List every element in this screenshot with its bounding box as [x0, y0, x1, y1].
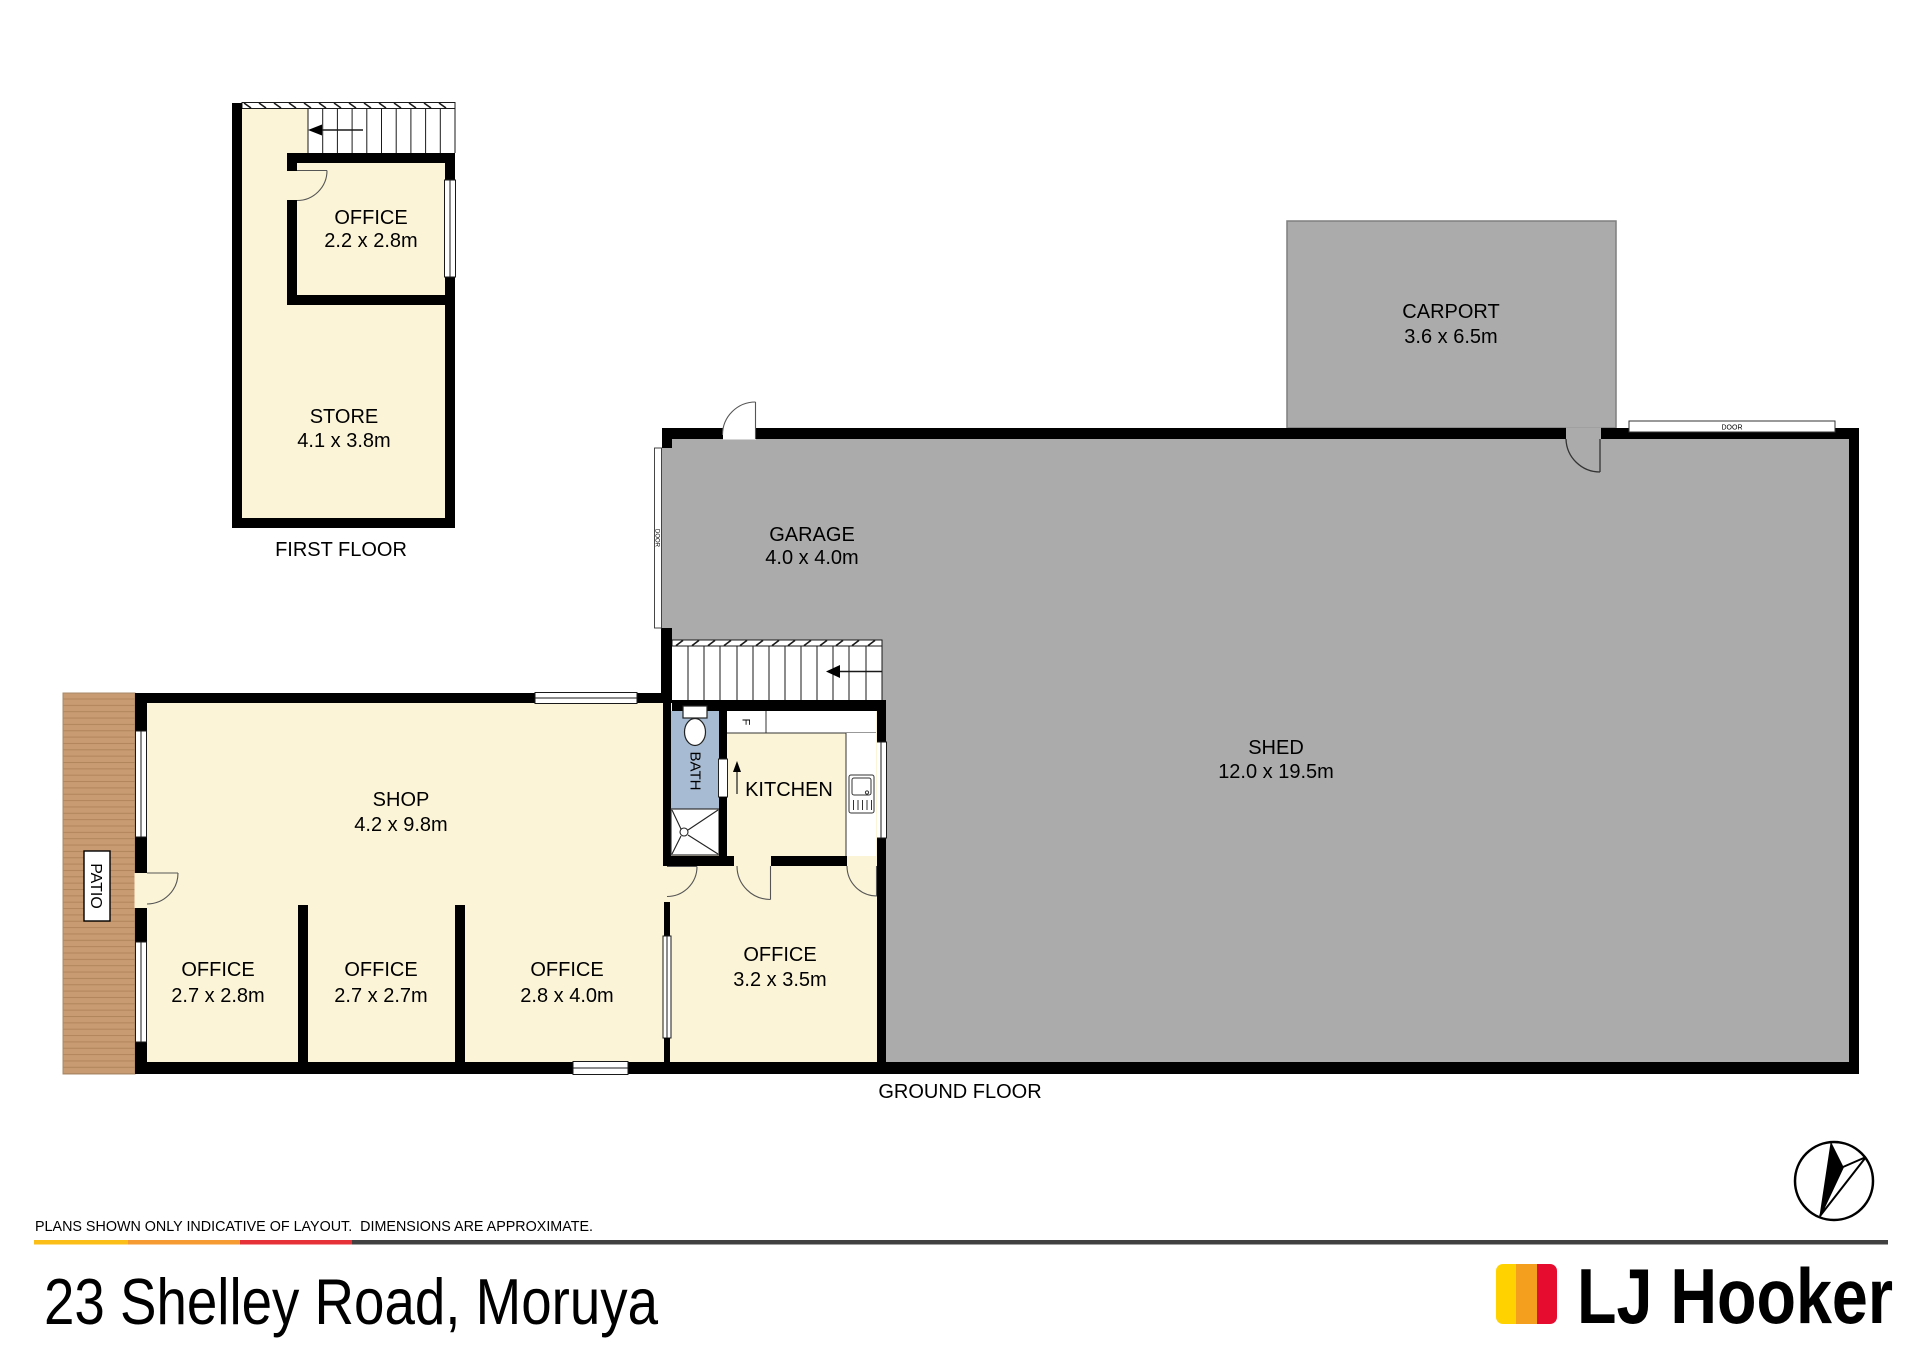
svg-text:SHOP: SHOP — [373, 789, 430, 811]
svg-text:DOOR: DOOR — [1722, 425, 1743, 432]
svg-text:F: F — [740, 719, 752, 726]
svg-text:2.8 x 4.0m: 2.8 x 4.0m — [520, 985, 613, 1007]
svg-text:OFFICE: OFFICE — [181, 959, 254, 981]
svg-text:2.7 x 2.7m: 2.7 x 2.7m — [334, 985, 427, 1007]
svg-text:OFFICE: OFFICE — [334, 207, 407, 229]
svg-text:2.7 x 2.8m: 2.7 x 2.8m — [171, 985, 264, 1007]
svg-text:CARPORT: CARPORT — [1402, 301, 1499, 323]
svg-text:BATH: BATH — [687, 752, 704, 791]
svg-text:4.2 x 9.8m: 4.2 x 9.8m — [354, 814, 447, 836]
svg-text:OFFICE: OFFICE — [344, 959, 417, 981]
svg-text:STORE: STORE — [310, 406, 379, 428]
svg-text:KITCHEN: KITCHEN — [745, 779, 833, 801]
svg-text:DOOR: DOOR — [654, 529, 660, 548]
svg-text:2.2 x 2.8m: 2.2 x 2.8m — [324, 230, 417, 252]
svg-text:GARAGE: GARAGE — [769, 524, 855, 546]
svg-text:4.1 x 3.8m: 4.1 x 3.8m — [297, 430, 390, 452]
svg-text:SHED: SHED — [1248, 737, 1304, 759]
svg-text:PATIO: PATIO — [87, 863, 104, 909]
svg-text:OFFICE: OFFICE — [743, 944, 816, 966]
svg-text:23 Shelley Road, Moruya: 23 Shelley Road, Moruya — [44, 1265, 659, 1338]
svg-text:3.6 x 6.5m: 3.6 x 6.5m — [1404, 326, 1497, 348]
svg-text:LJ Hooker: LJ Hooker — [1577, 1252, 1893, 1340]
svg-text:OFFICE: OFFICE — [530, 959, 603, 981]
svg-text:12.0 x 19.5m: 12.0 x 19.5m — [1218, 761, 1334, 783]
svg-text:GROUND FLOOR: GROUND FLOOR — [878, 1081, 1041, 1103]
svg-text:4.0 x 4.0m: 4.0 x 4.0m — [765, 547, 858, 569]
svg-text:3.2 x 3.5m: 3.2 x 3.5m — [733, 969, 826, 991]
svg-text:PLANS SHOWN ONLY INDICATIVE OF: PLANS SHOWN ONLY INDICATIVE OF LAYOUT. D… — [35, 1218, 593, 1235]
svg-text:FIRST FLOOR: FIRST FLOOR — [275, 539, 407, 561]
